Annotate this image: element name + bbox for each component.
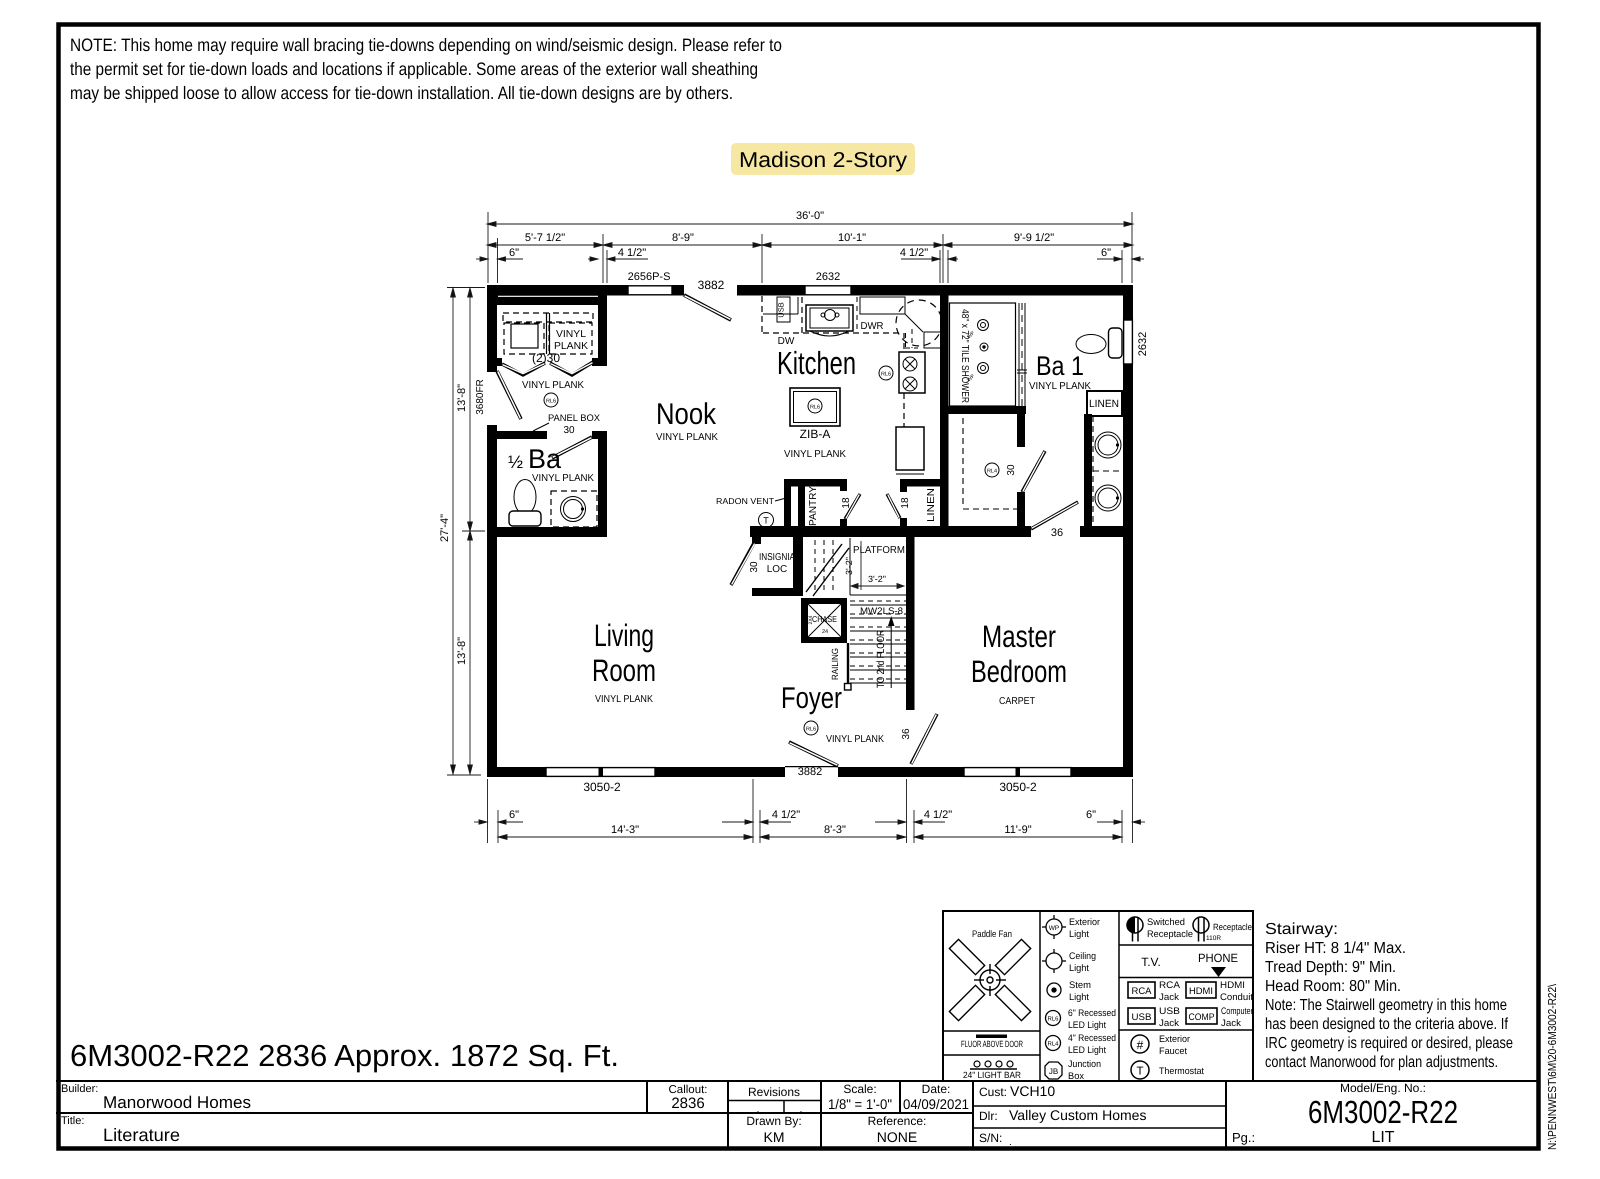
svg-text:Light: Light	[1069, 963, 1089, 974]
svg-text:.: .	[800, 1104, 803, 1114]
svg-text:36'-0": 36'-0"	[796, 210, 824, 222]
svg-text:DWR: DWR	[861, 321, 884, 332]
svg-text:RL6: RL6	[881, 372, 891, 378]
svg-text:has been designed to the crite: has been designed to the criteria above.…	[1265, 1016, 1508, 1033]
svg-text:VINYL PLANK: VINYL PLANK	[522, 380, 584, 391]
svg-text:6" Recessed: 6" Recessed	[1068, 1008, 1116, 1019]
svg-text:Valley Custom Homes: Valley Custom Homes	[1009, 1107, 1146, 1123]
svg-text:48" x 72" TILE SHOWER: 48" x 72" TILE SHOWER	[959, 309, 970, 403]
svg-text:4 1/2": 4 1/2"	[772, 809, 800, 821]
svg-text:.: .	[1009, 1137, 1012, 1148]
svg-text:IRC geometry is required or de: IRC geometry is required or desired, ple…	[1265, 1035, 1513, 1052]
svg-text:Nook: Nook	[656, 398, 717, 431]
svg-text:36: 36	[1051, 527, 1063, 539]
svg-text:KM: KM	[764, 1129, 785, 1145]
svg-text:10'-1": 10'-1"	[838, 232, 866, 244]
svg-text:Dlr:: Dlr:	[979, 1109, 998, 1123]
svg-text:18: 18	[841, 497, 852, 509]
svg-text:N:\PENNWEST\6M\20-6M3002-R22\: N:\PENNWEST\6M\20-6M3002-R22\	[1547, 983, 1559, 1150]
svg-text:LIT: LIT	[1371, 1129, 1394, 1146]
svg-text:PANTRY: PANTRY	[808, 486, 819, 526]
svg-text:RL6: RL6	[810, 405, 820, 411]
svg-text:5'-7 1/2": 5'-7 1/2"	[525, 232, 565, 244]
svg-text:Computer: Computer	[1221, 1006, 1253, 1017]
svg-text:04/09/2021: 04/09/2021	[903, 1096, 969, 1112]
svg-text:Thermostat: Thermostat	[1159, 1066, 1204, 1077]
svg-text:Paddle Fan: Paddle Fan	[972, 929, 1012, 940]
svg-text:Switched: Switched	[1147, 917, 1185, 928]
svg-text:24: 24	[822, 629, 828, 635]
svg-text:6M3002-R22: 6M3002-R22	[1308, 1094, 1458, 1130]
svg-text:VCH10: VCH10	[1010, 1083, 1055, 1099]
svg-text:CHASE: CHASE	[812, 614, 837, 624]
svg-text:COMP: COMP	[1189, 1012, 1215, 1023]
svg-text:30: 30	[1006, 464, 1017, 476]
svg-text:2836: 2836	[671, 1095, 704, 1112]
svg-text:Riser HT: 8 1/4" Max.: Riser HT: 8 1/4" Max.	[1265, 940, 1406, 957]
svg-text:USB: USB	[1159, 1006, 1180, 1017]
svg-text:INSIGNIA: INSIGNIA	[759, 552, 795, 563]
svg-text:Living: Living	[594, 618, 654, 653]
svg-text:6": 6"	[509, 247, 519, 259]
svg-text:VINYL PLANK: VINYL PLANK	[1029, 381, 1091, 392]
svg-text:3882: 3882	[798, 766, 822, 778]
svg-text:Madison 2-Story: Madison 2-Story	[739, 148, 907, 172]
svg-text:LOC: LOC	[767, 564, 788, 575]
svg-text:VINYL PLANK: VINYL PLANK	[784, 449, 846, 460]
svg-text:3882: 3882	[698, 278, 725, 292]
svg-text:CARPET: CARPET	[999, 696, 1035, 707]
svg-text:Receptacle: Receptacle	[1213, 922, 1252, 932]
svg-text:ZIB-A: ZIB-A	[800, 427, 831, 441]
svg-text:3050-2: 3050-2	[999, 780, 1037, 794]
svg-text:Scale:: Scale:	[843, 1082, 876, 1096]
svg-text:Kitchen: Kitchen	[777, 345, 856, 381]
svg-text:(2)30: (2)30	[532, 351, 560, 365]
svg-text:Light: Light	[1069, 992, 1089, 1003]
svg-text:VINYL: VINYL	[556, 329, 586, 340]
svg-text:Room: Room	[592, 653, 656, 688]
svg-text:.: .	[757, 1104, 760, 1114]
svg-text:3'-2": 3'-2"	[868, 574, 886, 584]
svg-text:18: 18	[900, 497, 911, 509]
svg-text:RL4: RL4	[987, 469, 997, 475]
svg-text:Exterior: Exterior	[1159, 1034, 1190, 1045]
svg-text:2632: 2632	[816, 271, 840, 283]
svg-text:LINEN: LINEN	[926, 488, 937, 522]
svg-text:Stem: Stem	[1069, 980, 1091, 991]
svg-text:Manorwood Homes: Manorwood Homes	[103, 1093, 251, 1112]
svg-text:T: T	[1136, 1066, 1143, 1078]
svg-text:HDMI: HDMI	[1189, 986, 1213, 997]
svg-text:VINYL PLANK: VINYL PLANK	[532, 473, 594, 484]
svg-text:T: T	[763, 516, 769, 526]
svg-text:Exterior: Exterior	[1069, 917, 1100, 928]
svg-text:Jack: Jack	[1159, 1018, 1179, 1029]
svg-text:6": 6"	[509, 809, 519, 821]
svg-text:RAILING: RAILING	[830, 648, 840, 680]
svg-text:NOTE: This home may require w: NOTE: This home may require wall bracing…	[70, 35, 782, 55]
svg-text:RCA: RCA	[1132, 986, 1153, 997]
svg-text:2X4: 2X4	[808, 615, 814, 624]
svg-text:Pg.:: Pg.:	[1232, 1130, 1255, 1145]
svg-text:USB: USB	[777, 302, 786, 317]
svg-text:LINEN: LINEN	[1089, 398, 1119, 410]
svg-text:JB: JB	[1049, 1067, 1058, 1076]
svg-text:#: #	[1137, 1038, 1144, 1052]
svg-text:30: 30	[563, 425, 575, 436]
svg-text:4 1/2": 4 1/2"	[900, 247, 928, 259]
svg-text:Receptacle: Receptacle	[1147, 929, 1193, 940]
svg-text:6": 6"	[1101, 247, 1111, 259]
svg-text:30: 30	[749, 561, 760, 573]
svg-text:9'-9 1/2": 9'-9 1/2"	[1014, 232, 1054, 244]
svg-text:USB: USB	[1132, 1012, 1152, 1023]
svg-text:PHONE: PHONE	[1198, 951, 1238, 965]
svg-text:LED Light: LED Light	[1068, 1020, 1106, 1031]
svg-text:13'-8": 13'-8"	[456, 637, 468, 665]
svg-text:Note: The Stairwell geometry i: Note: The Stairwell geometry in this hom…	[1265, 997, 1507, 1014]
svg-text:RL4: RL4	[1047, 1041, 1059, 1048]
svg-text:Master: Master	[982, 619, 1056, 654]
svg-text:contact Manorwood for plan adj: contact Manorwood for plan adjustments.	[1265, 1054, 1498, 1071]
svg-text:RCA: RCA	[1159, 980, 1181, 991]
svg-text:8'-3": 8'-3"	[824, 824, 846, 836]
svg-text:Faucet: Faucet	[1159, 1046, 1187, 1057]
svg-text:the permit set for tie-down lo: the permit set for tie-down loads and lo…	[70, 59, 758, 79]
svg-text:Date:: Date:	[922, 1082, 951, 1096]
svg-text:Stairway:: Stairway:	[1265, 921, 1338, 938]
svg-text:PANEL BOX: PANEL BOX	[548, 413, 601, 424]
svg-text:may be shipped loose to allow: may be shipped loose to allow access for…	[70, 83, 733, 103]
svg-text:Revisions: Revisions	[748, 1085, 800, 1099]
svg-text:LED Light: LED Light	[1068, 1045, 1106, 1056]
svg-text:VINYL PLANK: VINYL PLANK	[826, 734, 884, 745]
svg-text:Ba 1: Ba 1	[1036, 351, 1084, 381]
svg-text:FLUOR ABOVE DOOR: FLUOR ABOVE DOOR	[961, 1039, 1023, 1049]
svg-text:Light: Light	[1069, 929, 1089, 940]
svg-text:Builder:: Builder:	[61, 1083, 98, 1095]
svg-text:Junction: Junction	[1068, 1059, 1101, 1070]
svg-text:HDMI: HDMI	[1220, 980, 1245, 991]
svg-text:Bedroom: Bedroom	[971, 654, 1067, 689]
svg-text:RL6: RL6	[1047, 1016, 1059, 1023]
svg-text:8'-9": 8'-9"	[672, 232, 694, 244]
svg-text:Reference:: Reference:	[868, 1114, 927, 1128]
svg-text:VINYL PLANK: VINYL PLANK	[656, 432, 718, 443]
svg-text:27'-4": 27'-4"	[439, 514, 451, 542]
svg-text:Jack: Jack	[1159, 992, 1179, 1003]
svg-text:3680FR: 3680FR	[475, 379, 486, 415]
svg-text:VINYL PLANK: VINYL PLANK	[595, 694, 653, 705]
svg-text:13'-8": 13'-8"	[456, 384, 468, 412]
svg-text:S/N:: S/N:	[979, 1131, 1002, 1145]
svg-text:4 1/2": 4 1/2"	[924, 809, 952, 821]
svg-text:Head Room: 80" Min.: Head Room: 80" Min.	[1265, 978, 1401, 995]
svg-text:3'-2": 3'-2"	[844, 557, 854, 575]
svg-text:RADON VENT: RADON VENT	[716, 496, 774, 506]
svg-text:3050-2: 3050-2	[583, 780, 621, 794]
svg-text:6": 6"	[1086, 809, 1096, 821]
svg-text:Tread Depth: 9" Min.: Tread Depth: 9" Min.	[1265, 959, 1396, 976]
svg-text:Literature: Literature	[103, 1125, 180, 1145]
svg-text:36: 36	[901, 728, 912, 740]
svg-text:Drawn By:: Drawn By:	[746, 1114, 801, 1128]
svg-text:11'-9": 11'-9"	[1004, 824, 1031, 836]
svg-text:Model/Eng. No.:: Model/Eng. No.:	[1340, 1081, 1426, 1095]
svg-text:4 1/2": 4 1/2"	[618, 247, 646, 259]
svg-text:Conduit: Conduit	[1220, 992, 1253, 1003]
svg-text:Foyer: Foyer	[781, 682, 842, 715]
svg-text:2656P-S: 2656P-S	[628, 271, 671, 283]
svg-text:Jack: Jack	[1221, 1018, 1241, 1029]
svg-text:Ceiling: Ceiling	[1069, 951, 1096, 962]
svg-text:MW2LS-8: MW2LS-8	[860, 606, 903, 617]
svg-text:110R: 110R	[1206, 935, 1221, 942]
svg-text:1/8" = 1'-0": 1/8" = 1'-0"	[828, 1096, 892, 1112]
svg-text:NONE: NONE	[877, 1129, 917, 1145]
svg-text:T.V.: T.V.	[1141, 955, 1161, 969]
svg-text:24" LIGHT BAR: 24" LIGHT BAR	[963, 1070, 1021, 1080]
svg-text:Cust:: Cust:	[979, 1085, 1007, 1099]
svg-text:14'-3": 14'-3"	[611, 824, 639, 836]
svg-text:2632: 2632	[1137, 332, 1149, 356]
svg-text:4" Recessed: 4" Recessed	[1068, 1033, 1116, 1044]
svg-text:RL6: RL6	[806, 727, 816, 733]
svg-text:RL6: RL6	[546, 399, 556, 405]
svg-text:Title:: Title:	[61, 1115, 84, 1127]
svg-text:WP: WP	[1049, 925, 1059, 932]
svg-text:6M3002-R22 2836 Approx. 1872: 6M3002-R22 2836 Approx. 1872 Sq. Ft.	[70, 1039, 619, 1073]
svg-text:TO 2nd FLOOR: TO 2nd FLOOR	[875, 630, 887, 688]
